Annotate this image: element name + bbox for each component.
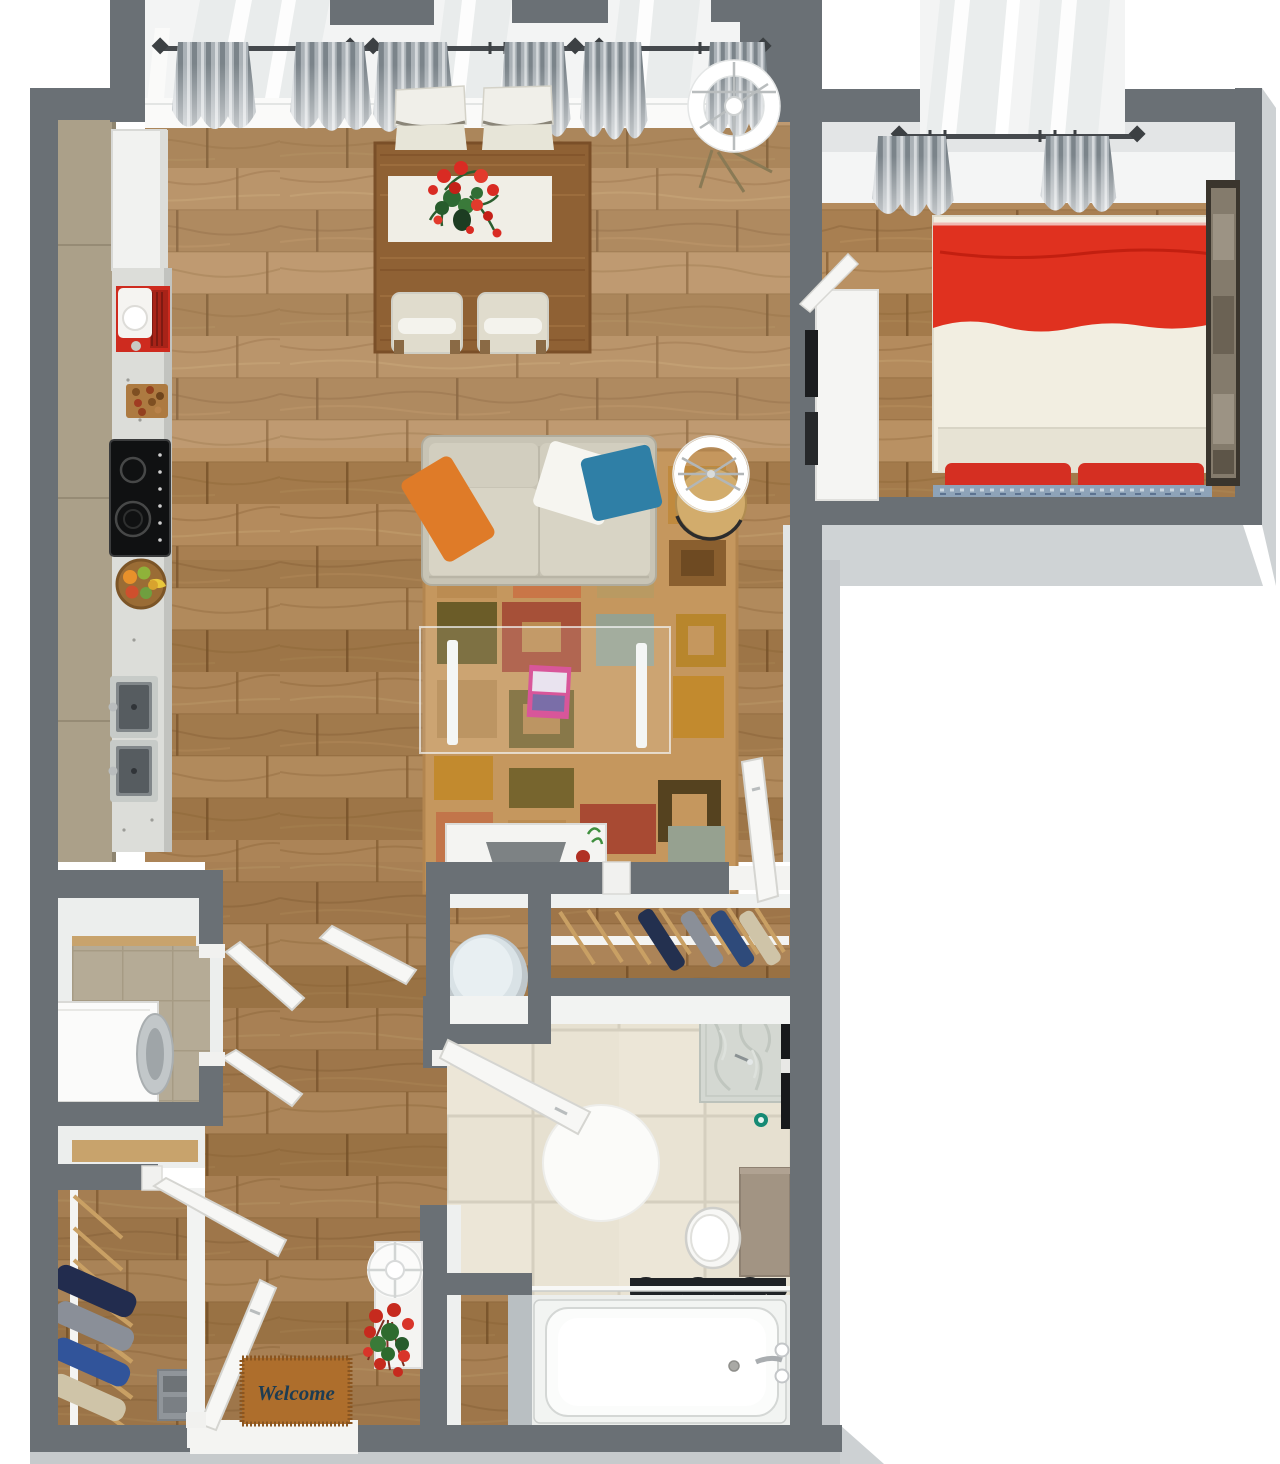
svg-text:Welcome: Welcome bbox=[257, 1381, 335, 1405]
